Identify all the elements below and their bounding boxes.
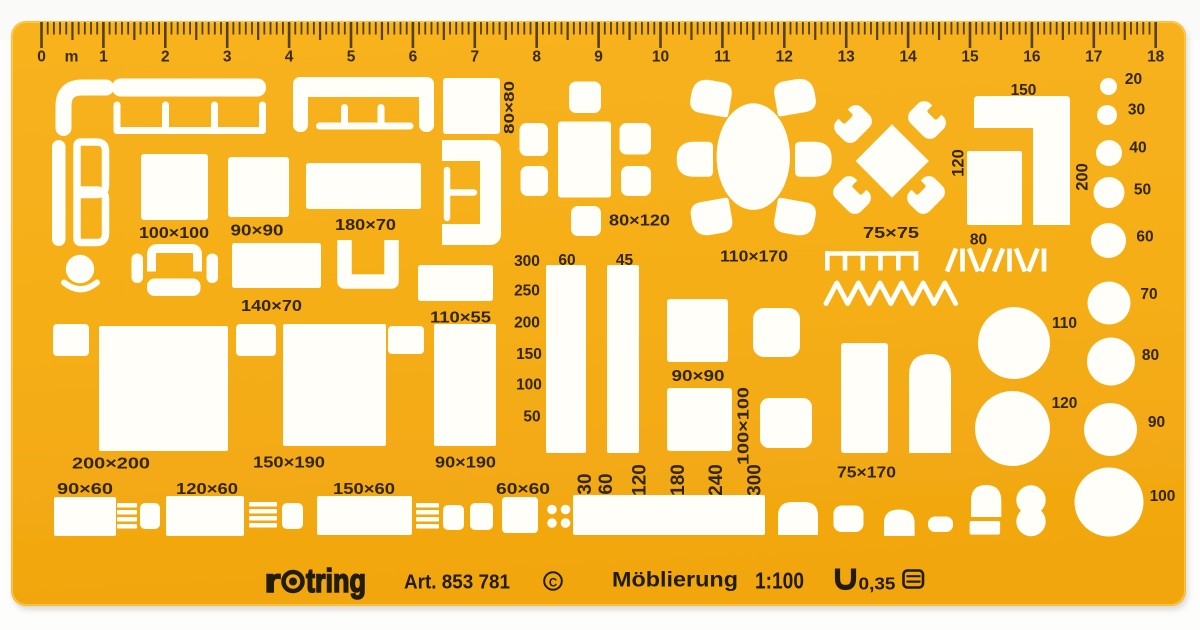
svg-text:120×60: 120×60 — [176, 481, 238, 498]
svg-text:75×75: 75×75 — [863, 225, 919, 242]
svg-text:50: 50 — [1134, 182, 1151, 199]
svg-text:90×90: 90×90 — [672, 368, 725, 385]
svg-text:30: 30 — [575, 473, 596, 494]
svg-text:16: 16 — [1023, 49, 1041, 66]
svg-text:300: 300 — [745, 464, 766, 496]
svg-text:1:100: 1:100 — [755, 568, 804, 594]
svg-text:180: 180 — [668, 464, 689, 496]
svg-text:C: C — [549, 578, 557, 590]
svg-text:100: 100 — [516, 377, 542, 394]
svg-text:90×190: 90×190 — [435, 455, 496, 472]
svg-text:120: 120 — [950, 149, 968, 177]
svg-text:18: 18 — [1147, 49, 1165, 66]
svg-text:9: 9 — [594, 49, 603, 66]
svg-text:13: 13 — [838, 49, 856, 66]
svg-text:80×80: 80×80 — [501, 81, 518, 134]
svg-text:150: 150 — [1011, 82, 1037, 99]
svg-text:240: 240 — [706, 464, 727, 496]
svg-text:180×70: 180×70 — [335, 217, 396, 234]
svg-text:150×60: 150×60 — [333, 481, 395, 498]
svg-text:4: 4 — [285, 49, 294, 66]
svg-text:0,35: 0,35 — [859, 574, 896, 594]
svg-text:120: 120 — [1052, 395, 1078, 412]
svg-text:0: 0 — [37, 49, 46, 66]
svg-text:8: 8 — [532, 49, 541, 66]
svg-text:12: 12 — [776, 49, 793, 66]
svg-text:200×200: 200×200 — [72, 456, 150, 473]
svg-text:30: 30 — [1128, 102, 1145, 119]
svg-text:60: 60 — [1136, 229, 1153, 246]
svg-text:20: 20 — [1125, 71, 1142, 88]
svg-text:80×120: 80×120 — [609, 213, 670, 230]
svg-text:110: 110 — [1052, 315, 1077, 332]
svg-text:6: 6 — [409, 49, 418, 66]
svg-text:110×170: 110×170 — [720, 249, 788, 266]
svg-text:11: 11 — [714, 49, 731, 66]
svg-text:17: 17 — [1085, 49, 1102, 66]
svg-text:Möblierung: Möblierung — [612, 568, 738, 592]
svg-text:150: 150 — [516, 346, 542, 363]
svg-text:70: 70 — [1140, 286, 1157, 303]
svg-text:60: 60 — [596, 473, 617, 494]
svg-text:80: 80 — [970, 232, 987, 249]
svg-text:200: 200 — [514, 315, 540, 332]
svg-text:90: 90 — [1148, 414, 1165, 431]
svg-text:5: 5 — [347, 49, 356, 66]
svg-text:60×60: 60×60 — [496, 481, 550, 498]
svg-text:50: 50 — [523, 409, 540, 426]
svg-text:250: 250 — [514, 283, 540, 300]
svg-text:150×190: 150×190 — [253, 455, 325, 472]
svg-text:tring: tring — [306, 562, 366, 599]
svg-text:140×70: 140×70 — [241, 298, 302, 315]
svg-text:r: r — [265, 562, 281, 599]
svg-text:110×55: 110×55 — [430, 310, 491, 327]
svg-text:m: m — [65, 49, 79, 66]
svg-text:75×170: 75×170 — [837, 465, 896, 482]
svg-text:7: 7 — [470, 49, 479, 66]
svg-text:100: 100 — [1150, 488, 1176, 505]
svg-text:100×100: 100×100 — [139, 225, 209, 242]
svg-text:14: 14 — [899, 49, 917, 66]
svg-text:Art. 853 781: Art. 853 781 — [404, 571, 510, 594]
svg-text:80: 80 — [1142, 347, 1159, 364]
svg-text:300: 300 — [514, 253, 540, 270]
svg-text:3: 3 — [223, 49, 232, 66]
svg-text:90×60: 90×60 — [57, 481, 113, 498]
svg-text:200: 200 — [1074, 163, 1092, 191]
svg-text:2: 2 — [161, 49, 170, 66]
svg-text:40: 40 — [1129, 140, 1146, 157]
svg-text:90×90: 90×90 — [231, 223, 284, 240]
svg-text:100×100: 100×100 — [736, 387, 753, 465]
svg-text:1: 1 — [99, 49, 108, 66]
svg-text:15: 15 — [961, 49, 979, 66]
svg-text:10: 10 — [652, 49, 669, 66]
svg-text:120: 120 — [630, 464, 651, 496]
